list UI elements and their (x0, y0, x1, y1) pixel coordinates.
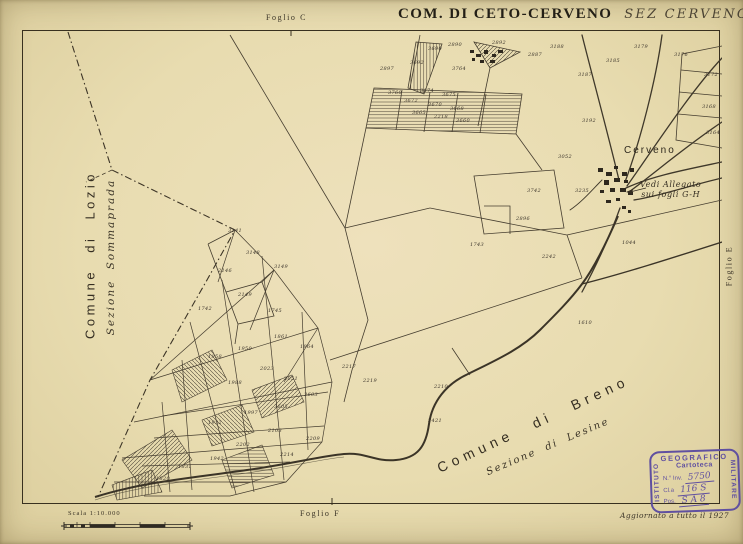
parcel-number: 3176 (674, 52, 688, 58)
road-network (570, 35, 722, 292)
scale-bar (56, 518, 201, 532)
village-name-label: Cerveno (624, 145, 676, 156)
adjacent-sheet-label-top: Foglio C (266, 13, 307, 22)
scale-label: Scala 1:10.000 (68, 510, 121, 517)
parcel-number: 1861 (274, 334, 288, 340)
adjacent-sheet-label-right: Foglio E (725, 246, 734, 287)
stamp-field-value: S A 8 (678, 494, 709, 508)
parcel-number: 2146 (217, 268, 232, 274)
parcel-number: 3764 (452, 66, 466, 72)
frame-ticks (291, 30, 332, 505)
parcel-number: 1864 (300, 344, 314, 350)
parcel-number: 3141 (228, 228, 242, 234)
see-attachment-note: Vedi Allegato sui fogli G-H (640, 180, 701, 200)
parcel-number: 2051 (283, 376, 298, 382)
comune-lozio-label: Comune di Lozio (83, 171, 98, 339)
parcel-number: 2202 (235, 442, 250, 448)
sezione-sommaprada-label: Sezione Sommaprada (105, 179, 117, 336)
parcel-number: 3168 (702, 104, 716, 110)
commune-title: COM. DI CETO-CERVENO (398, 6, 612, 23)
stamp-field-label: N.° Inv. (663, 475, 682, 482)
parcel-number: 3052 (558, 154, 572, 160)
parcel-number: 1745 (268, 308, 282, 314)
parcel-number: 3149 (274, 264, 288, 270)
parcel-number: 3235 (575, 188, 589, 194)
parcel-number: 2217 (341, 364, 356, 370)
parcel-number: 3179 (634, 44, 648, 50)
parcel-number: 2242 (541, 254, 556, 260)
parcel-number: 1988 (228, 380, 242, 386)
parcel-number: 3665 (412, 110, 426, 116)
parcel-number: 2218 (433, 114, 448, 120)
parcel-number: 3172 (704, 72, 718, 78)
parcel-number: 3164 (706, 130, 720, 136)
parcel-number: 3672 (404, 98, 418, 104)
parcel-number: 1950 (238, 346, 252, 352)
parcel-number: 3605 (274, 404, 288, 410)
parcel-number: 1932 (208, 420, 222, 426)
sheet-title: COM. DI CETO-CERVENO SEZ CERVENO F.º D (398, 6, 743, 23)
parcel-number: 2023 (259, 366, 274, 372)
see-attachment-line1: Vedi Allegato (640, 180, 701, 190)
parcel-number: 3670 (428, 102, 442, 108)
parcel-number: 3192 (582, 118, 596, 124)
igm-archive-stamp: GEOGRAFICO ISTITUTO MILITARE Cartoteca N… (649, 448, 741, 513)
parcel-number: 1997 (244, 410, 258, 416)
parcel-number: 1942 (210, 456, 224, 462)
parcel-number: 3742 (527, 188, 541, 194)
parcel-number: 3188 (550, 44, 564, 50)
parcel-number: 2209 (305, 436, 320, 442)
parcel-number: 1820 (156, 476, 170, 482)
parcel-number: 1743 (470, 242, 484, 248)
parcel-number: 3668 (450, 106, 464, 112)
stamp-field-value: 5750 (685, 471, 715, 484)
parcel-number: 1742 (198, 306, 212, 312)
parcel-number: 1610 (578, 320, 592, 326)
parcel-number: 3660 (456, 118, 470, 124)
parcel-number: 2897 (379, 66, 394, 72)
parcel-number: 2219 (362, 378, 377, 384)
parcel-number: 2214 (279, 452, 294, 458)
parcel-number: 2890 (447, 42, 462, 48)
parcel-number: 2421 (427, 418, 442, 424)
parcel-number: 3603 (304, 392, 318, 398)
parcel-number: 3760 (388, 90, 402, 96)
parcel-number: 1831 (178, 464, 192, 470)
stamp-field-position: Pos. S A 8 (664, 495, 709, 508)
parcel-number: 3692 (410, 60, 424, 66)
parcel-number: 3690 (428, 46, 442, 52)
parcel-number: 1044 (622, 240, 636, 246)
parcel-number: 3675 (442, 92, 456, 98)
adjacent-sheet-label-bottom: Foglio F (300, 509, 340, 518)
parcel-number: 3187 (578, 72, 592, 78)
parcel-number: 2149 (237, 292, 252, 298)
parcel-boundaries (208, 35, 722, 402)
parcel-number: 3674 (420, 88, 434, 94)
see-attachment-line2: sui fogli G-H (640, 190, 701, 200)
parcel-number: 2210 (433, 384, 448, 390)
parcel-number: 2892 (491, 40, 506, 46)
parcel-number: 1958 (208, 354, 222, 360)
parcel-number: 3148 (246, 250, 260, 256)
stamp-field-label: Cl.a (663, 488, 674, 494)
cadastral-map-sheet: Foglio C COM. DI CETO-CERVENO SEZ CERVEN… (0, 0, 743, 544)
stamp-field-label: Pos. (664, 499, 676, 505)
parcel-number: 2896 (515, 216, 530, 222)
section-title: SEZ CERVENO (624, 7, 743, 22)
parcel-number: 3185 (606, 58, 620, 64)
parcel-number: 2103 (267, 428, 282, 434)
map-linework-svg: 2897369036922890289228873188318731853179… (22, 30, 722, 505)
parcel-number: 2887 (527, 52, 542, 58)
